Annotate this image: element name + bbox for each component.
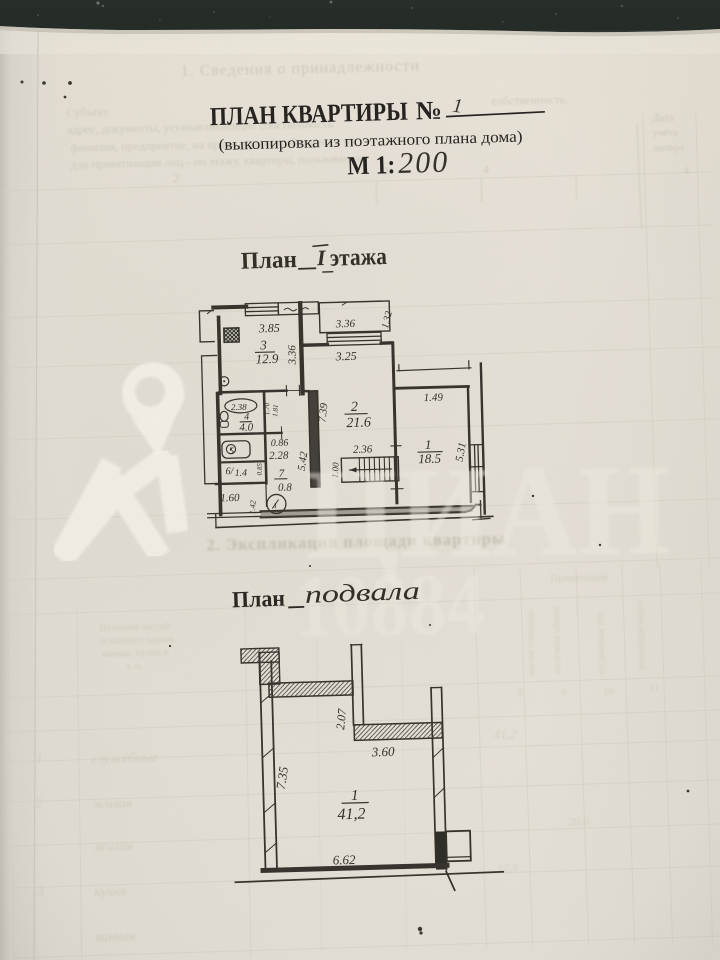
svg-text:0.85: 0.85 [256, 463, 264, 476]
svg-text:41,2: 41,2 [337, 806, 365, 824]
svg-text:1.81: 1.81 [271, 404, 280, 417]
svg-text:1.60: 1.60 [220, 492, 240, 505]
svg-text:М 1:: М 1: [347, 150, 396, 180]
svg-text:6.62: 6.62 [333, 852, 357, 868]
svg-text:План: План [240, 247, 297, 275]
svg-text:2: 2 [351, 400, 358, 415]
svg-text:этажа: этажа [329, 244, 387, 272]
svg-text:5: 5 [229, 446, 234, 457]
svg-text:2.07: 2.07 [333, 707, 349, 730]
svg-text:21.6: 21.6 [346, 415, 371, 431]
svg-text:2.38: 2.38 [231, 402, 248, 412]
svg-text:1: 1 [273, 501, 277, 510]
svg-text:12.9: 12.9 [255, 351, 279, 367]
svg-text:7.39: 7.39 [316, 402, 330, 423]
svg-text:3.60: 3.60 [371, 744, 396, 760]
svg-text:План: План [232, 586, 286, 613]
svg-text:№: № [415, 96, 442, 126]
svg-text:1.42: 1.42 [248, 500, 258, 515]
svg-text:3.36: 3.36 [335, 318, 356, 331]
svg-text:0.8: 0.8 [278, 482, 293, 494]
svg-text:0.86: 0.86 [271, 438, 289, 449]
svg-text:ПЛАН КВАРТИРЫ: ПЛАН КВАРТИРЫ [209, 97, 408, 132]
svg-text:подвала: подвала [304, 578, 420, 609]
svg-text:1.4: 1.4 [234, 468, 247, 479]
svg-text:3.25: 3.25 [334, 349, 356, 364]
svg-text:1.49: 1.49 [424, 392, 444, 405]
svg-text:3: 3 [259, 337, 267, 352]
svg-text:2.28: 2.28 [269, 450, 289, 463]
svg-text:3.85: 3.85 [258, 321, 280, 336]
svg-text:7: 7 [278, 468, 284, 480]
svg-text:200: 200 [398, 146, 450, 180]
svg-text:1: 1 [351, 788, 359, 804]
svg-text:3.36: 3.36 [286, 345, 299, 366]
svg-text:4.0: 4.0 [239, 422, 254, 434]
svg-text:1.70: 1.70 [263, 402, 271, 415]
